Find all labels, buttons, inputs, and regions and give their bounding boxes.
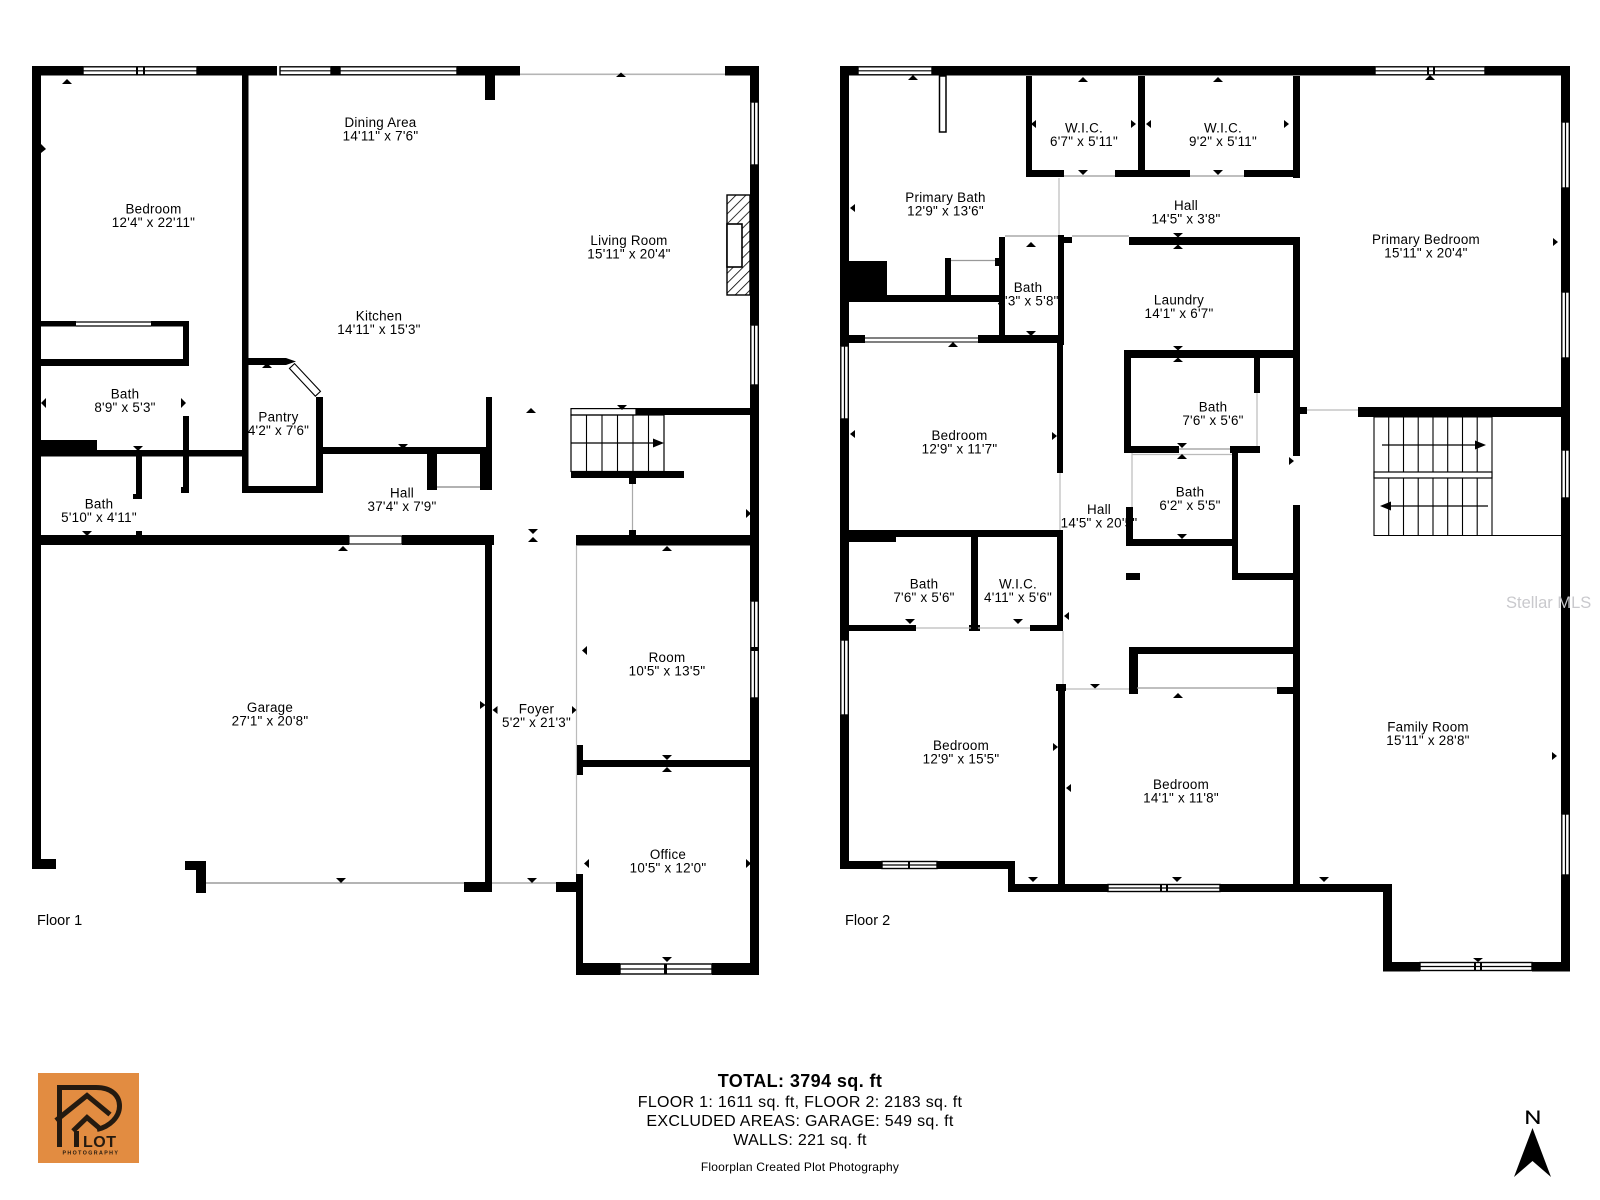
svg-text:14'1" x 6'7": 14'1" x 6'7": [1145, 306, 1214, 321]
svg-text:14'1" x 11'8": 14'1" x 11'8": [1143, 791, 1219, 806]
svg-text:PHOTOGRAPHY: PHOTOGRAPHY: [63, 1151, 120, 1157]
svg-text:8'9" x 5'3": 8'9" x 5'3": [94, 400, 155, 415]
svg-text:12'9" x 13'6": 12'9" x 13'6": [907, 204, 984, 219]
svg-text:3'3" x 5'8": 3'3" x 5'8": [997, 294, 1058, 309]
svg-text:15'11" x 20'4": 15'11" x 20'4": [1384, 246, 1467, 261]
svg-text:5'2" x 21'3": 5'2" x 21'3": [502, 715, 571, 730]
svg-text:6'7" x 5'11": 6'7" x 5'11": [1050, 134, 1118, 149]
svg-text:FLOOR 1: 1611 sq. ft, FLOOR 2:: FLOOR 1: 1611 sq. ft, FLOOR 2: 2183 sq. …: [638, 1094, 963, 1111]
svg-text:Floor 2: Floor 2: [845, 913, 890, 929]
svg-text:14'11" x 7'6": 14'11" x 7'6": [343, 129, 419, 144]
svg-text:WALLS: 221 sq. ft: WALLS: 221 sq. ft: [733, 1132, 867, 1149]
svg-text:37'4" x 7'9": 37'4" x 7'9": [368, 499, 437, 514]
svg-text:15'11" x 28'8": 15'11" x 28'8": [1386, 733, 1469, 748]
svg-text:4'2" x 7'6": 4'2" x 7'6": [248, 423, 309, 438]
svg-text:14'11" x 15'3": 14'11" x 15'3": [337, 322, 420, 337]
svg-text:12'4" x 22'11": 12'4" x 22'11": [112, 215, 195, 230]
svg-text:LOT: LOT: [83, 1134, 117, 1151]
svg-text:12'9" x 15'5": 12'9" x 15'5": [923, 752, 1000, 767]
svg-text:EXCLUDED AREAS: GARAGE: 549 sq: EXCLUDED AREAS: GARAGE: 549 sq. ft: [646, 1113, 953, 1130]
svg-text:14'5" x 20'5": 14'5" x 20'5": [1061, 516, 1138, 531]
svg-text:10'5" x 12'0": 10'5" x 12'0": [630, 861, 707, 876]
svg-text:15'11" x 20'4": 15'11" x 20'4": [587, 247, 670, 262]
svg-text:7'6" x 5'6": 7'6" x 5'6": [1182, 413, 1243, 428]
svg-text:TOTAL: 3794 sq. ft: TOTAL: 3794 sq. ft: [718, 1071, 883, 1091]
svg-text:6'2" x 5'5": 6'2" x 5'5": [1159, 498, 1220, 513]
svg-text:27'1" x 20'8": 27'1" x 20'8": [232, 714, 309, 729]
svg-text:14'5" x 3'8": 14'5" x 3'8": [1152, 212, 1221, 227]
svg-text:9'2" x 5'11": 9'2" x 5'11": [1189, 134, 1257, 149]
svg-text:Stellar MLS: Stellar MLS: [1506, 594, 1591, 612]
svg-text:7'6" x 5'6": 7'6" x 5'6": [893, 590, 954, 605]
svg-text:Floorplan Created Plot Photogr: Floorplan Created Plot Photography: [701, 1160, 899, 1174]
svg-text:4'11" x 5'6": 4'11" x 5'6": [984, 590, 1052, 605]
svg-text:10'5" x 13'5": 10'5" x 13'5": [629, 664, 706, 679]
svg-text:Floor 1: Floor 1: [37, 913, 82, 929]
svg-text:12'9" x 11'7": 12'9" x 11'7": [922, 442, 998, 457]
svg-text:5'10" x 4'11": 5'10" x 4'11": [61, 510, 137, 525]
